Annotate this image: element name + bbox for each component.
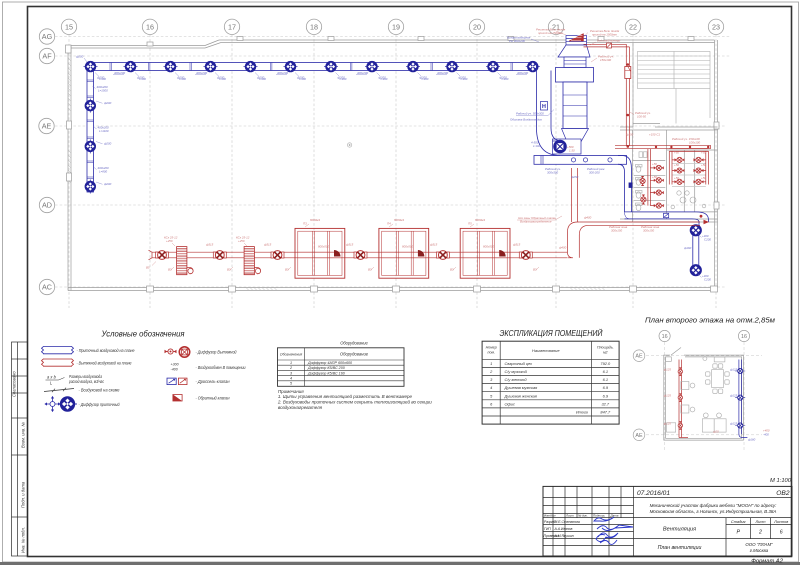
svg-text:С200: С200 bbox=[704, 238, 711, 242]
svg-text:С300: С300 bbox=[461, 77, 468, 81]
svg-text:С300: С300 bbox=[502, 77, 509, 81]
svg-text:Подпись: Подпись bbox=[593, 514, 605, 518]
svg-text:2: 2 bbox=[289, 366, 292, 370]
svg-text:2. Воздуховоды приточных систе: 2. Воздуховоды приточных систем секрыть … bbox=[277, 399, 432, 405]
svg-text:ф315: ф315 bbox=[264, 243, 272, 247]
svg-text:пом.: пом. bbox=[487, 351, 494, 355]
svg-text:8000м3: 8000м3 bbox=[475, 218, 485, 222]
svg-text:ф160: ф160 bbox=[684, 246, 692, 250]
svg-text:1:30: 1:30 bbox=[569, 149, 575, 153]
svg-text:С300: С300 bbox=[259, 77, 266, 81]
svg-text:-400: -400 bbox=[763, 433, 769, 437]
svg-text:4: 4 bbox=[290, 377, 292, 381]
svg-text:ф125: ф125 bbox=[730, 422, 738, 426]
svg-text:Листов: Листов bbox=[773, 519, 788, 524]
svg-text:РН 400х200: РН 400х200 bbox=[509, 39, 525, 43]
svg-text:ф315: ф315 bbox=[346, 243, 354, 247]
svg-text:400х200: 400х200 bbox=[277, 71, 288, 75]
svg-text:ООО "ПЛАМ": ООО "ПЛАМ" bbox=[745, 542, 773, 547]
svg-text:ОВ2: ОВ2 bbox=[776, 490, 790, 497]
svg-text:- Воздухообмен В помещении: - Воздухообмен В помещении bbox=[196, 365, 247, 370]
svg-text:16: 16 bbox=[146, 22, 154, 31]
svg-text:А.М.Якушин: А.М.Якушин bbox=[554, 534, 574, 538]
svg-text:800х500: 800х500 bbox=[318, 245, 329, 249]
svg-text:+50: +50 bbox=[701, 151, 706, 155]
svg-text:План второго этажа на отм.2,85: План второго этажа на отм.2,85м bbox=[645, 316, 775, 325]
svg-text:+50: +50 bbox=[674, 176, 679, 180]
svg-text:1: 1 bbox=[290, 361, 292, 365]
svg-text:Обшивка Воздуховодов: Обшивка Воздуховодов bbox=[510, 118, 542, 122]
svg-text:ф125: ф125 bbox=[730, 368, 738, 372]
svg-text:ф315: ф315 bbox=[206, 243, 214, 247]
svg-text:Диффузор К5/ВС 160: Диффузор К5/ВС 160 bbox=[307, 371, 346, 375]
svg-text:ф400: ф400 bbox=[584, 216, 592, 220]
svg-text:П3: П3 bbox=[303, 222, 307, 226]
svg-text:100х100: 100х100 bbox=[689, 141, 700, 145]
svg-text:23: 23 bbox=[712, 22, 720, 31]
svg-text:AC: AC bbox=[42, 283, 52, 292]
svg-text:М 1:100: М 1:100 bbox=[770, 478, 792, 484]
svg-text:Душевая женская: Душевая женская bbox=[504, 393, 537, 398]
svg-text:ф125: ф125 bbox=[664, 422, 672, 426]
svg-text:300х300: 300х300 bbox=[547, 171, 558, 175]
svg-text:AF: AF bbox=[42, 52, 52, 61]
svg-text:В5: В5 bbox=[146, 266, 150, 270]
svg-text:А.А.Иванов: А.А.Иванов bbox=[554, 527, 573, 531]
svg-text:м2: м2 bbox=[603, 351, 607, 355]
svg-text:L=1500: L=1500 bbox=[98, 89, 108, 93]
svg-text:400х200: 400х200 bbox=[357, 71, 368, 75]
svg-text:С300: С300 bbox=[422, 77, 429, 81]
svg-text:16: 16 bbox=[662, 334, 668, 340]
svg-text:400х200: 400х200 bbox=[437, 71, 448, 75]
svg-text:С300: С300 bbox=[299, 77, 306, 81]
svg-text:1:100: 1:100 bbox=[533, 144, 541, 148]
svg-text:ф125: ф125 bbox=[664, 394, 672, 398]
svg-text:792.0: 792.0 bbox=[600, 361, 611, 366]
svg-text:Условные обозначения: Условные обозначения bbox=[101, 330, 186, 339]
svg-text:L=1100: L=1100 bbox=[99, 129, 109, 133]
svg-text:AG: AG bbox=[42, 32, 53, 41]
svg-text:- Диффузор приточный: - Диффузор приточный bbox=[79, 402, 121, 407]
svg-text:ф200: ф200 bbox=[104, 142, 112, 146]
svg-text:AD: AD bbox=[42, 201, 52, 210]
svg-text:L: L bbox=[50, 381, 52, 386]
svg-text:+150 С1: +150 С1 bbox=[649, 133, 660, 137]
svg-text:+50: +50 bbox=[652, 162, 657, 166]
svg-text:22: 22 bbox=[629, 22, 637, 31]
svg-text:Итого: Итого bbox=[576, 410, 589, 415]
svg-text:400х200: 400х200 bbox=[517, 71, 528, 75]
svg-text:800х500: 800х500 bbox=[483, 245, 494, 249]
svg-text:П4: П4 bbox=[387, 222, 391, 226]
svg-text:Лист: Лист bbox=[754, 519, 766, 524]
svg-text:18: 18 bbox=[310, 22, 318, 31]
svg-text:Обозначения: Обозначения bbox=[280, 352, 303, 356]
svg-text:+50: +50 bbox=[701, 176, 706, 180]
svg-text:+300: +300 bbox=[171, 363, 179, 367]
svg-text:Дата: Дата bbox=[610, 514, 619, 518]
svg-text:8000м3: 8000м3 bbox=[310, 218, 320, 222]
svg-text:г.Москва: г.Москва bbox=[750, 548, 769, 553]
svg-text:С300: С300 bbox=[139, 77, 146, 81]
svg-text:a x b: a x b bbox=[47, 375, 57, 380]
svg-text:Диффузор 4АПР 600х600: Диффузор 4АПР 600х600 bbox=[307, 361, 353, 365]
svg-text:№ док.: № док. bbox=[578, 514, 588, 518]
svg-text:1: 1 bbox=[490, 361, 492, 366]
svg-text:- Дроссель-клапан: - Дроссель-клапан bbox=[196, 379, 231, 384]
svg-text:+50: +50 bbox=[701, 163, 706, 167]
svg-text:Согласовано: Согласовано bbox=[12, 371, 17, 397]
svg-text:Номер: Номер bbox=[486, 346, 497, 350]
svg-text:+50: +50 bbox=[674, 151, 679, 155]
svg-text:- Приточный воздуховод на план: - Приточный воздуховод на плане bbox=[77, 348, 136, 353]
svg-text:воздухонагревателя: воздухонагревателя bbox=[278, 405, 323, 410]
svg-text:300х150: 300х150 bbox=[643, 229, 654, 233]
svg-text:ф315: ф315 bbox=[513, 243, 521, 247]
svg-text:L=800: L=800 bbox=[99, 170, 108, 174]
svg-text:Наименование: Наименование bbox=[532, 348, 560, 353]
svg-text:Душевая мужская: Душевая мужская bbox=[504, 385, 538, 390]
svg-text:ф150: ф150 bbox=[626, 133, 634, 137]
svg-text:ф125: ф125 bbox=[730, 394, 738, 398]
svg-text:AE: AE bbox=[42, 122, 52, 131]
svg-text:С300: С300 bbox=[99, 77, 106, 81]
svg-text:H: H bbox=[542, 104, 546, 110]
svg-text:6.1: 6.1 bbox=[603, 369, 608, 374]
svg-text:+50: +50 bbox=[652, 175, 657, 179]
svg-text:300-200: 300-200 bbox=[589, 171, 600, 175]
svg-text:32.7: 32.7 bbox=[602, 401, 610, 406]
svg-text:16: 16 bbox=[741, 334, 747, 340]
svg-text:Вентиляция: Вентиляция bbox=[663, 527, 696, 533]
svg-text:- Воздуховод на схеме: - Воздуховод на схеме bbox=[79, 388, 121, 393]
svg-text:400х200: 400х200 bbox=[196, 71, 207, 75]
svg-text:20: 20 bbox=[473, 22, 481, 31]
svg-text:С/у мужской: С/у мужской bbox=[505, 369, 528, 374]
svg-text:+25С: +25С bbox=[238, 239, 246, 243]
svg-text:Офис: Офис bbox=[505, 401, 515, 406]
svg-text:П5: П5 bbox=[468, 222, 472, 226]
svg-text:15: 15 bbox=[65, 22, 73, 31]
svg-text:2: 2 bbox=[758, 530, 762, 536]
svg-text:-400: -400 bbox=[171, 368, 178, 372]
svg-text:847.7: 847.7 bbox=[600, 410, 611, 415]
svg-text:+50: +50 bbox=[674, 163, 679, 167]
svg-text:ф200: ф200 bbox=[76, 55, 84, 59]
svg-text:17: 17 bbox=[228, 22, 236, 31]
svg-text:Инв. № подл.: Инв. № подл. bbox=[20, 527, 25, 553]
svg-text:ГИП: ГИП bbox=[544, 527, 551, 531]
svg-text:приход на 1500мм: приход на 1500мм bbox=[592, 33, 617, 37]
svg-text:Примечания: Примечания bbox=[278, 389, 304, 394]
svg-text:150х100: 150х100 bbox=[600, 58, 611, 62]
svg-text:Взам. инв. №: Взам. инв. № bbox=[20, 422, 25, 448]
svg-text:Площадь,: Площадь, bbox=[597, 346, 614, 350]
svg-text:С300: С300 bbox=[340, 77, 347, 81]
svg-text:АЕ: АЕ bbox=[635, 354, 643, 360]
svg-text:М.Е.Степанова: М.Е.Степанова bbox=[555, 520, 580, 524]
svg-text:400х200: 400х200 bbox=[114, 71, 125, 75]
svg-text:Воздухораспределение: Воздухораспределение bbox=[520, 220, 552, 224]
svg-text:С200: С200 bbox=[704, 278, 711, 282]
svg-text:Изм Кол: Изм Кол bbox=[544, 514, 556, 518]
svg-text:ф250: ф250 bbox=[571, 175, 579, 179]
svg-text:- Вытяжной воздуховод на плане: - Вытяжной воздуховод на плане bbox=[77, 360, 133, 365]
svg-text:приход на 1500мм: приход на 1500мм bbox=[538, 31, 563, 35]
svg-text:ЭКСПЛИКАЦИЯ ПОМЕЩЕНИЙ: ЭКСПЛИКАЦИЯ ПОМЕЩЕНИЙ bbox=[500, 327, 603, 338]
svg-text:19: 19 bbox=[392, 22, 400, 31]
svg-text:300х150: 300х150 bbox=[611, 229, 622, 233]
svg-text:Видимый контур: Видимый контур bbox=[597, 39, 621, 43]
svg-text:План вентиляции: План вентиляции bbox=[658, 545, 702, 551]
svg-text:Стадия: Стадия bbox=[731, 519, 746, 524]
svg-text:С300: С300 bbox=[179, 77, 186, 81]
svg-text:ф200: ф200 bbox=[104, 101, 112, 105]
svg-text:ф315: ф315 bbox=[430, 243, 438, 247]
svg-text:Р: Р bbox=[736, 530, 740, 536]
svg-text:С/у женской: С/у женской bbox=[505, 377, 528, 382]
svg-text:Формат А2: Формат А2 bbox=[751, 559, 783, 565]
svg-text:Оборудование: Оборудование bbox=[340, 351, 369, 356]
svg-text:АЕ: АЕ bbox=[635, 433, 643, 439]
svg-text:ф400: ф400 bbox=[559, 246, 567, 250]
svg-text:С300: С300 bbox=[381, 77, 388, 81]
svg-text:Оборудование: Оборудование bbox=[340, 341, 368, 346]
svg-text:8000м3: 8000м3 bbox=[394, 218, 404, 222]
svg-text:6.9: 6.9 bbox=[603, 393, 609, 398]
svg-text:расход воздуха, м3/час: расход воздуха, м3/час bbox=[68, 379, 104, 384]
svg-text:07.2016/01: 07.2016/01 bbox=[637, 490, 670, 497]
svg-text:Сварочный цех: Сварочный цех bbox=[505, 361, 534, 366]
svg-text:ф160: ф160 bbox=[748, 438, 756, 442]
svg-text:+25С: +25С bbox=[166, 239, 174, 243]
svg-text:6.9: 6.9 bbox=[603, 385, 609, 390]
svg-text:- Диффузор Вытяжной: - Диффузор Вытяжной bbox=[196, 350, 238, 355]
svg-text:Лист: Лист bbox=[565, 514, 574, 518]
svg-text:Подп. и дата: Подп. и дата bbox=[20, 481, 25, 508]
svg-text:800х500: 800х500 bbox=[402, 245, 413, 249]
svg-text:Московская область, г.Ногинск,: Московская область, г.Ногинск, ул.Индуст… bbox=[650, 509, 777, 514]
svg-text:ф200: ф200 bbox=[104, 182, 112, 186]
svg-text:ф125: ф125 bbox=[664, 368, 672, 372]
svg-text:Диффузор К5/ВС 200: Диффузор К5/ВС 200 bbox=[307, 366, 346, 370]
svg-text:Рабочий уч. 500х300: Рабочий уч. 500х300 bbox=[516, 112, 544, 116]
svg-text:ф20: ф20 bbox=[713, 430, 719, 434]
svg-text:С300: С300 bbox=[219, 77, 226, 81]
svg-text:6.1: 6.1 bbox=[603, 377, 608, 382]
svg-text:6: 6 bbox=[780, 530, 783, 536]
svg-text:Механический участок фабрики м: Механический участок фабрики мебели "МОО… bbox=[650, 502, 778, 508]
svg-text:1. Щиты управления вентиляцией: 1. Щиты управления вентиляцией разместит… bbox=[278, 393, 413, 399]
svg-text:100-50: 100-50 bbox=[637, 115, 646, 119]
svg-text:- Обратный клапан: - Обратный клапан bbox=[196, 396, 231, 401]
